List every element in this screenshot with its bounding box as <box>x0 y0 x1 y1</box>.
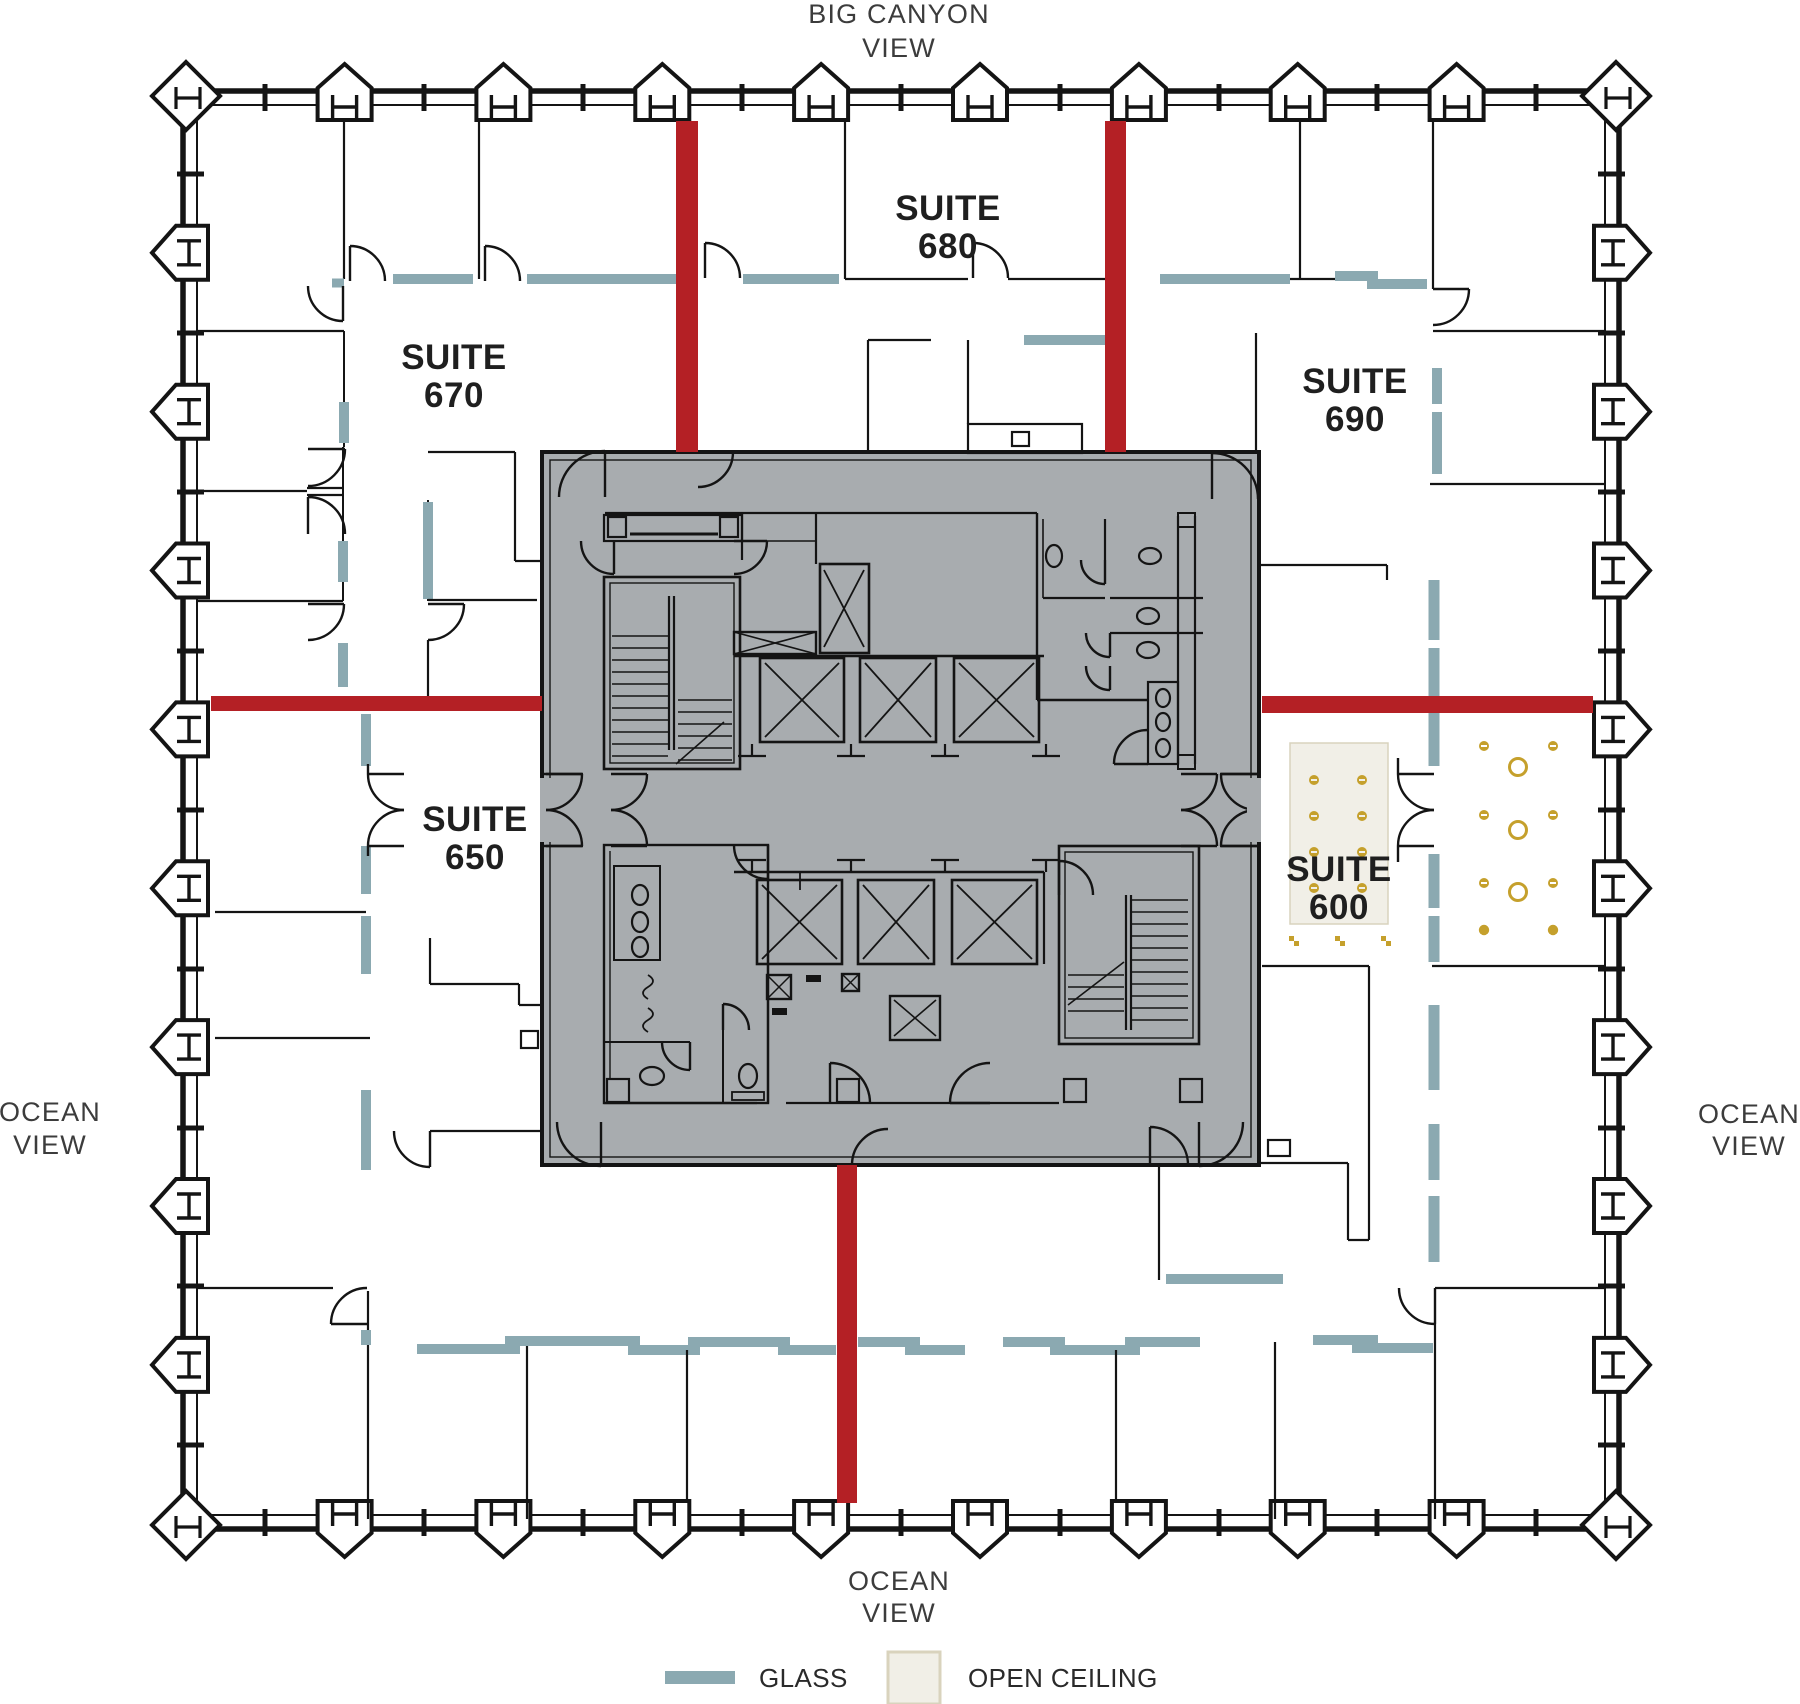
svg-text:SUITE: SUITE <box>422 800 528 839</box>
svg-text:600: 600 <box>1309 888 1369 927</box>
svg-text:SUITE: SUITE <box>1302 362 1408 401</box>
svg-text:VIEW: VIEW <box>862 1598 936 1628</box>
svg-text:SUITE: SUITE <box>401 338 507 377</box>
svg-text:OCEAN: OCEAN <box>0 1097 101 1127</box>
svg-text:GLASS: GLASS <box>759 1663 848 1693</box>
svg-text:680: 680 <box>918 227 978 266</box>
svg-text:670: 670 <box>424 376 484 415</box>
svg-text:SUITE: SUITE <box>1286 850 1392 889</box>
svg-text:BIG CANYON: BIG CANYON <box>808 0 990 29</box>
svg-text:VIEW: VIEW <box>862 33 936 63</box>
svg-text:SUITE: SUITE <box>895 189 1001 228</box>
svg-text:VIEW: VIEW <box>1712 1131 1786 1161</box>
svg-text:690: 690 <box>1325 400 1385 439</box>
svg-text:OCEAN: OCEAN <box>1698 1099 1800 1129</box>
svg-text:OPEN CEILING: OPEN CEILING <box>968 1663 1158 1693</box>
svg-text:VIEW: VIEW <box>13 1130 87 1160</box>
svg-text:650: 650 <box>445 838 505 877</box>
svg-text:OCEAN: OCEAN <box>848 1566 950 1596</box>
